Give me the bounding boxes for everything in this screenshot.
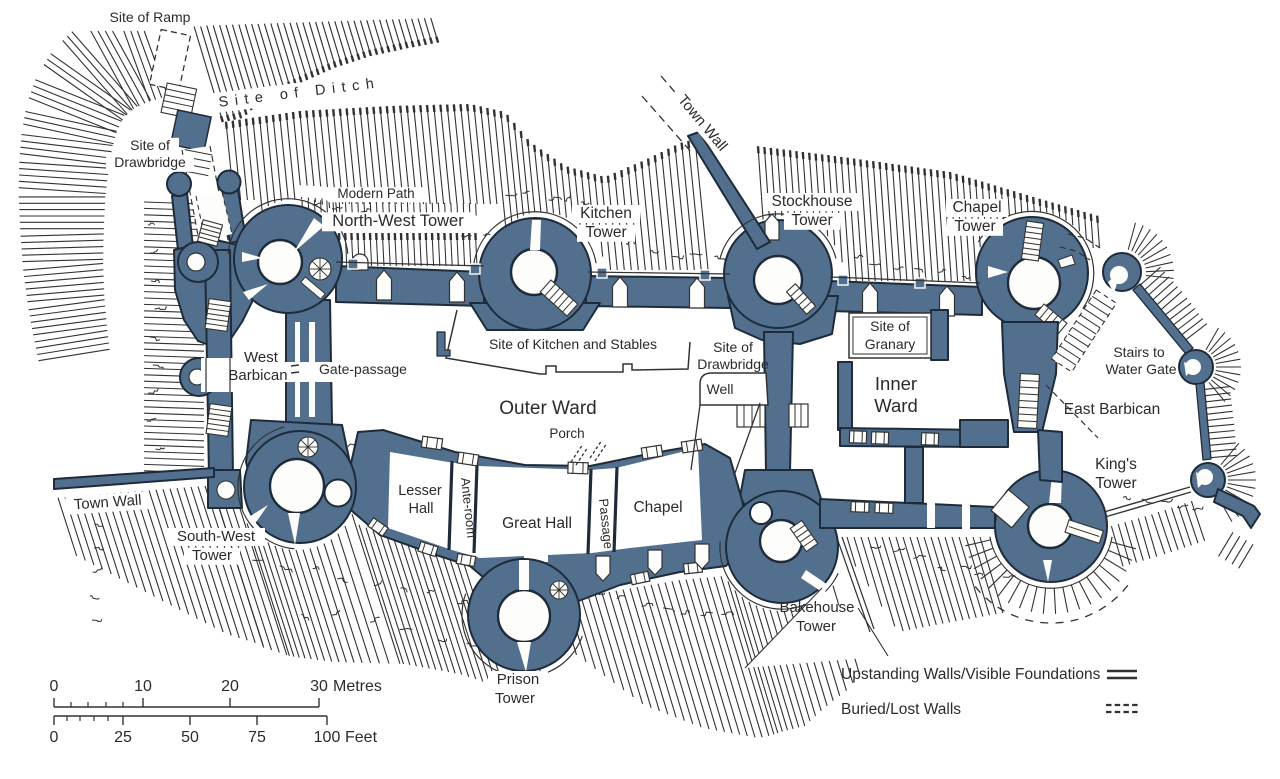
svg-text:30: 30 xyxy=(310,678,328,695)
svg-text:75: 75 xyxy=(248,729,266,746)
svg-text:Outer Ward: Outer Ward xyxy=(499,398,597,419)
svg-text:Buried/Lost Walls: Buried/Lost Walls xyxy=(841,701,961,718)
svg-text:20: 20 xyxy=(221,678,239,695)
svg-text:100: 100 xyxy=(314,729,341,746)
svg-text:Drawbridge: Drawbridge xyxy=(114,154,186,170)
svg-text:Site of: Site of xyxy=(713,339,753,355)
svg-text:Feet: Feet xyxy=(345,729,378,746)
svg-text:Kitchen: Kitchen xyxy=(580,205,632,222)
svg-text:Hall: Hall xyxy=(409,501,434,517)
svg-text:Barbican: Barbican xyxy=(228,367,287,384)
svg-text:Prison: Prison xyxy=(497,671,540,688)
svg-text:Site of: Site of xyxy=(870,318,910,334)
svg-text:10: 10 xyxy=(134,678,152,695)
svg-text:Ward: Ward xyxy=(874,395,918,416)
svg-text:King's: King's xyxy=(1095,456,1137,473)
svg-text:Granary: Granary xyxy=(865,336,916,352)
svg-text:Lesser: Lesser xyxy=(398,483,442,499)
svg-text:Upstanding Walls/Visible Found: Upstanding Walls/Visible Foundations xyxy=(841,666,1101,683)
svg-text:Water Gate: Water Gate xyxy=(1105,361,1176,377)
svg-text:25: 25 xyxy=(114,729,132,746)
svg-text:Inner: Inner xyxy=(875,373,917,394)
svg-text:Tower: Tower xyxy=(954,218,995,235)
svg-text:Tower: Tower xyxy=(585,224,626,241)
svg-text:Site of Kitchen and Stables: Site of Kitchen and Stables xyxy=(489,336,657,352)
svg-text:Porch: Porch xyxy=(549,426,584,441)
svg-text:Tower: Tower xyxy=(796,618,836,635)
svg-text:Bakehouse: Bakehouse xyxy=(779,599,854,616)
svg-text:Stairs to: Stairs to xyxy=(1113,344,1165,360)
svg-text:Tower: Tower xyxy=(495,690,535,707)
svg-text:0: 0 xyxy=(50,729,59,746)
svg-text:South-West: South-West xyxy=(177,528,256,545)
svg-text:50: 50 xyxy=(181,729,199,746)
svg-text:Tower: Tower xyxy=(192,547,232,564)
svg-text:Stockhouse: Stockhouse xyxy=(772,193,853,210)
svg-text:Metres: Metres xyxy=(333,678,382,695)
svg-text:Site of: Site of xyxy=(130,137,170,153)
svg-text:Chapel: Chapel xyxy=(952,199,1001,216)
svg-text:Gate-passage: Gate-passage xyxy=(319,361,407,377)
svg-text:Well: Well xyxy=(707,381,734,397)
svg-text:Tower: Tower xyxy=(791,212,832,229)
svg-text:Great Hall: Great Hall xyxy=(502,515,572,532)
svg-text:West: West xyxy=(244,349,279,366)
svg-text:Chapel: Chapel xyxy=(633,499,682,516)
svg-text:East Barbican: East Barbican xyxy=(1064,401,1161,418)
svg-text:Tower: Tower xyxy=(1095,475,1136,492)
svg-text:Drawbridge: Drawbridge xyxy=(697,356,769,372)
svg-text:0: 0 xyxy=(50,678,59,695)
svg-text:Modern Path: Modern Path xyxy=(337,186,414,201)
svg-text:North-West Tower: North-West Tower xyxy=(332,212,464,230)
svg-text:Site of Ramp: Site of Ramp xyxy=(110,9,191,25)
